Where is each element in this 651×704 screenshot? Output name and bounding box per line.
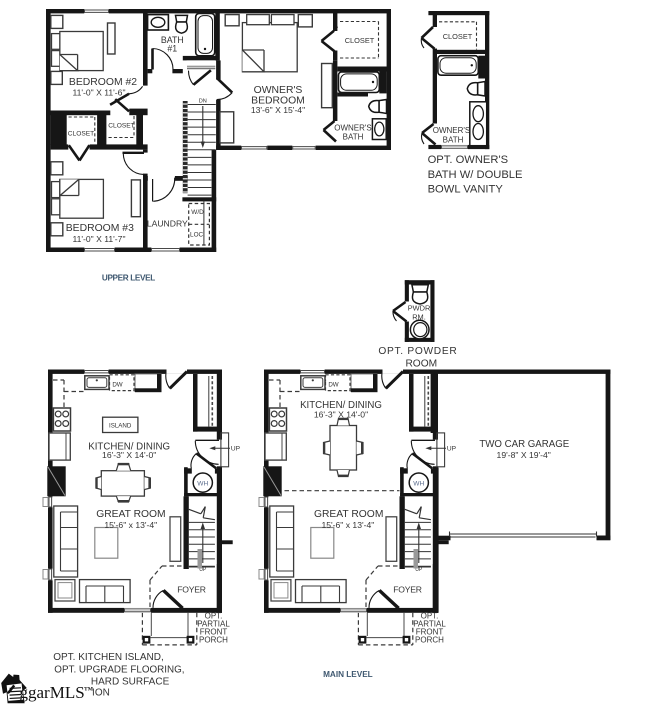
svg-text:OPT. POWDER: OPT. POWDER bbox=[378, 346, 457, 357]
svg-text:CLOSET: CLOSET bbox=[108, 122, 134, 129]
svg-text:FOYER: FOYER bbox=[393, 585, 422, 595]
svg-text:BATH: BATH bbox=[343, 133, 364, 142]
svg-text:BATH W/ DOUBLE: BATH W/ DOUBLE bbox=[428, 169, 523, 181]
svg-text:PORCH: PORCH bbox=[415, 636, 444, 645]
svg-text:OWNER'S: OWNER'S bbox=[433, 126, 471, 135]
svg-text:OWNER'S: OWNER'S bbox=[254, 85, 303, 96]
svg-text:GREAT ROOM: GREAT ROOM bbox=[314, 509, 383, 520]
svg-text:11'-0" X 11'-6": 11'-0" X 11'-6" bbox=[72, 87, 125, 97]
svg-text:19'-8" X 19'-4": 19'-8" X 19'-4" bbox=[497, 450, 551, 460]
svg-text:TM: TM bbox=[84, 687, 94, 693]
svg-text:TWO CAR GARAGE: TWO CAR GARAGE bbox=[479, 439, 569, 450]
svg-text:15'-6" x 13'-4": 15'-6" x 13'-4" bbox=[321, 520, 374, 530]
svg-text:MAIN LEVEL: MAIN LEVEL bbox=[323, 670, 373, 679]
svg-text:CLOSET: CLOSET bbox=[443, 32, 473, 41]
svg-text:PWDR: PWDR bbox=[408, 304, 431, 313]
svg-text:11'-0" X 11'-7": 11'-0" X 11'-7" bbox=[72, 234, 125, 244]
svg-text:UP: UP bbox=[447, 446, 457, 453]
svg-text:OPT. KITCHEN ISLAND,: OPT. KITCHEN ISLAND, bbox=[53, 652, 164, 663]
svg-text:W/D: W/D bbox=[191, 209, 204, 216]
svg-text:ggarMLS: ggarMLS bbox=[20, 683, 85, 702]
svg-text:DN: DN bbox=[199, 99, 207, 105]
svg-text:CLOSET: CLOSET bbox=[68, 130, 94, 137]
svg-text:15'-6" x 13'-4": 15'-6" x 13'-4" bbox=[104, 520, 157, 530]
svg-text:OPT. UPGRADE FLOORING,: OPT. UPGRADE FLOORING, bbox=[54, 665, 184, 676]
svg-text:UPPER LEVEL: UPPER LEVEL bbox=[102, 273, 155, 282]
svg-text:CLOSET: CLOSET bbox=[345, 36, 375, 45]
svg-text:BEDROOM #3: BEDROOM #3 bbox=[66, 223, 134, 234]
svg-text:BEDROOM #2: BEDROOM #2 bbox=[69, 77, 137, 88]
svg-text:DW: DW bbox=[328, 381, 338, 388]
svg-text:OWNER'S: OWNER'S bbox=[334, 123, 372, 132]
svg-text:RM.: RM. bbox=[412, 312, 426, 321]
svg-text:WH: WH bbox=[197, 481, 208, 488]
svg-text:PORCH: PORCH bbox=[199, 636, 228, 645]
svg-text:OPT. OWNER'S: OPT. OWNER'S bbox=[428, 154, 508, 166]
svg-text:#1: #1 bbox=[167, 43, 177, 53]
svg-text:BOWL VANITY: BOWL VANITY bbox=[428, 184, 504, 196]
svg-text:UP: UP bbox=[231, 446, 241, 453]
svg-text:16'-3" X 14'-0": 16'-3" X 14'-0" bbox=[102, 450, 156, 460]
svg-text:LAUNDRY: LAUNDRY bbox=[147, 218, 188, 228]
svg-text:LOC.: LOC. bbox=[190, 232, 205, 239]
svg-text:ISLAND: ISLAND bbox=[109, 423, 132, 430]
svg-text:13'-6" X 15'-4": 13'-6" X 15'-4" bbox=[251, 105, 305, 115]
svg-text:FOYER: FOYER bbox=[177, 585, 206, 595]
svg-text:ROOM: ROOM bbox=[405, 358, 437, 369]
svg-text:DW: DW bbox=[112, 381, 122, 388]
svg-text:BATH: BATH bbox=[443, 136, 464, 145]
svg-text:GREAT ROOM: GREAT ROOM bbox=[96, 509, 165, 520]
svg-text:WH: WH bbox=[413, 481, 424, 488]
